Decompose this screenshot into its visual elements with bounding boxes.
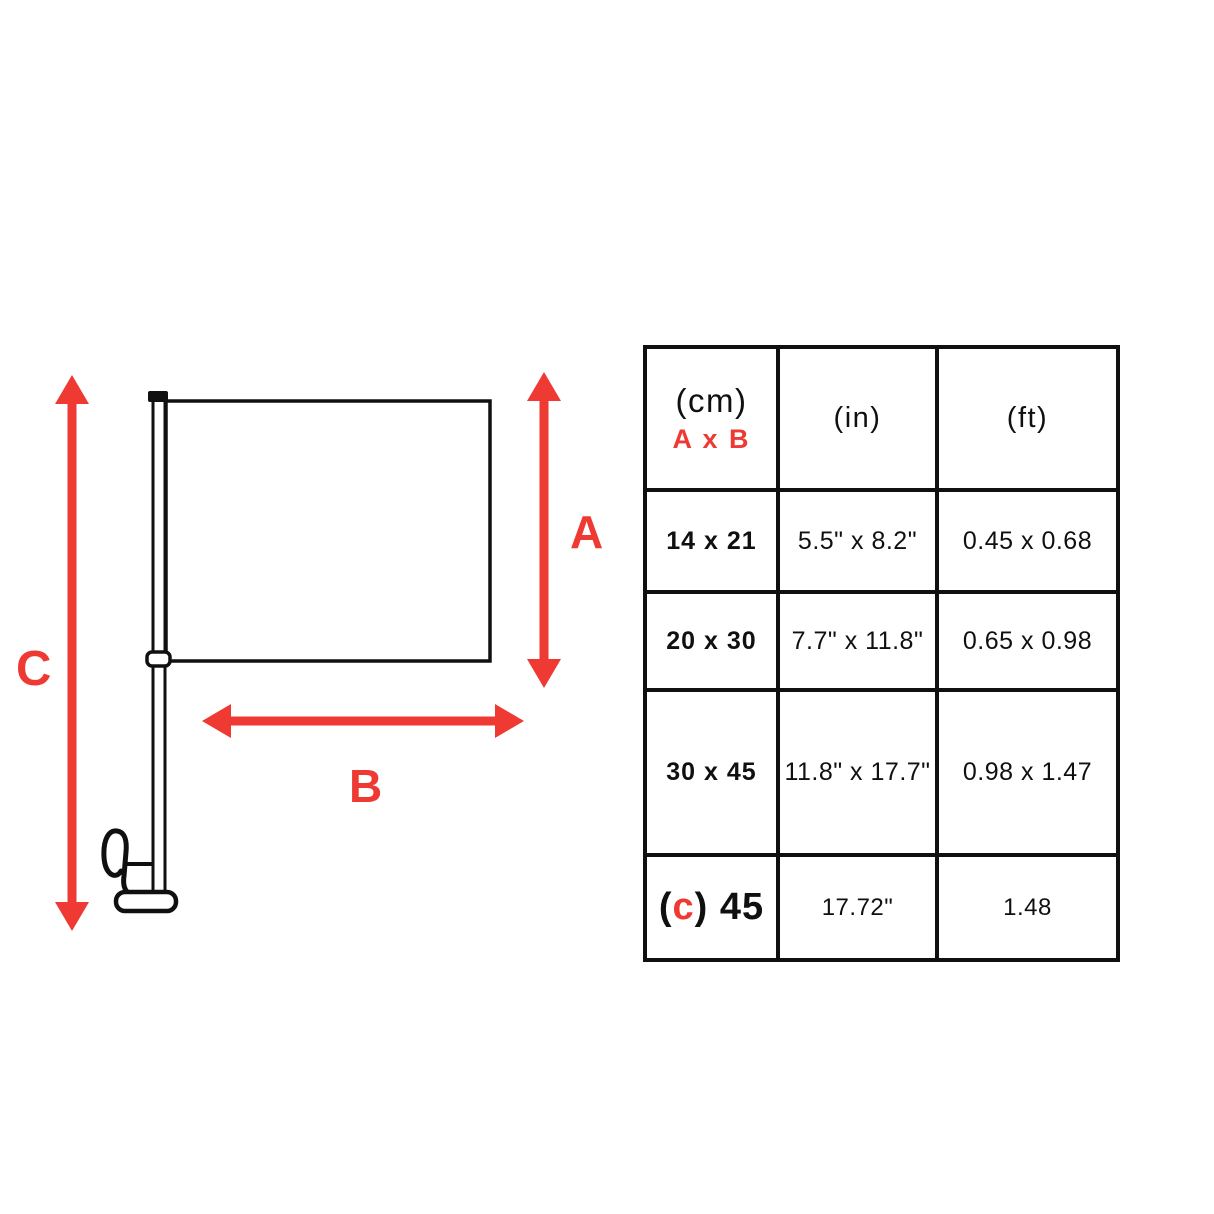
table-cell-in: 11.8" x 17.7": [780, 692, 935, 853]
table-cell-ft-pole: 1.48: [939, 857, 1116, 958]
table-cell-cm: 30 x 45: [647, 692, 776, 853]
table-cell-cm: 14 x 21: [647, 492, 776, 590]
in-unit-label: (in): [834, 402, 882, 435]
dimension-label-b: B: [349, 763, 383, 809]
a-x-b-label: A x B: [672, 424, 750, 455]
size-cm-value: 14 x 21: [666, 527, 756, 556]
size-cm-value: 20 x 30: [666, 627, 756, 656]
size-chart-table: (cm) A x B (in) (ft) 14 x 21 5.5" x 8.2"…: [643, 345, 1120, 962]
size-chart-page: A B C (cm) A x B (in) (ft) 14 x 21 5.5" …: [0, 0, 1214, 1214]
size-in-value: 7.7" x 11.8": [792, 627, 924, 656]
table-cell-ft: 0.98 x 1.47: [939, 692, 1116, 853]
size-in-value: 11.8" x 17.7": [784, 758, 930, 787]
car-window-flag-icon: [104, 391, 490, 911]
table-cell-ft: 0.65 x 0.98: [939, 594, 1116, 688]
dimension-arrow-c-icon: [55, 375, 89, 931]
table-cell-in: 5.5" x 8.2": [780, 492, 935, 590]
header-cell-cm: (cm) A x B: [647, 349, 776, 488]
c-dimension-letter: c: [673, 886, 695, 928]
dimension-arrow-a-icon: [527, 372, 561, 688]
size-ft-value: 0.98 x 1.47: [963, 758, 1092, 787]
size-ft-value: 0.45 x 0.68: [963, 527, 1092, 556]
header-cell-in: (in): [780, 349, 935, 488]
dimension-label-c: C: [16, 645, 52, 694]
paren-close-and-value: ) 45: [695, 886, 764, 928]
cm-unit-label: (cm): [676, 382, 748, 420]
pole-size-cm-value: (c) 45: [659, 886, 764, 929]
size-in-value: 5.5" x 8.2": [798, 527, 917, 556]
paren-open: (: [659, 886, 673, 928]
size-cm-value: 30 x 45: [666, 758, 756, 787]
ft-unit-label: (ft): [1007, 402, 1048, 435]
dimension-label-a: A: [570, 509, 604, 555]
table-cell-ft: 0.45 x 0.68: [939, 492, 1116, 590]
pole-size-ft-value: 1.48: [1003, 894, 1052, 922]
table-cell-in-pole: 17.72": [780, 857, 935, 958]
dimension-arrow-b-icon: [202, 704, 524, 738]
table-cell-cm: 20 x 30: [647, 594, 776, 688]
size-ft-value: 0.65 x 0.98: [963, 627, 1092, 656]
table-cell-in: 7.7" x 11.8": [780, 594, 935, 688]
header-cell-ft: (ft): [939, 349, 1116, 488]
table-cell-cm-pole: (c) 45: [647, 857, 776, 958]
pole-size-in-value: 17.72": [822, 894, 894, 922]
